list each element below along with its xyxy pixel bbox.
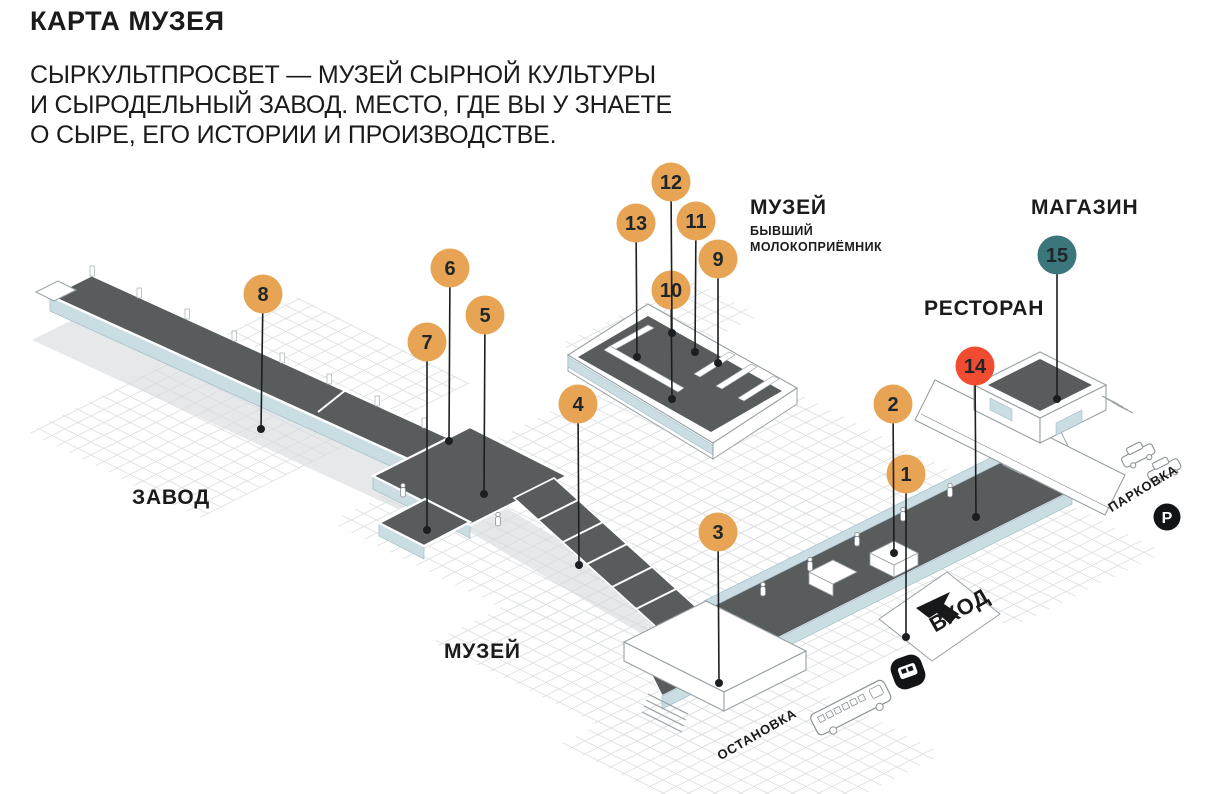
car-icon	[1118, 437, 1158, 471]
marker-endpoint-dot	[890, 549, 898, 557]
marker-leader-line	[671, 182, 672, 333]
marker-leader-line	[449, 268, 450, 441]
museum-map-page: Р	[0, 0, 1224, 794]
marker-endpoint-dot	[575, 561, 583, 569]
marker-number: 4	[572, 394, 584, 416]
marker-leader-line	[636, 223, 637, 357]
marker-endpoint-dot	[715, 679, 723, 687]
marker-endpoint-dot	[668, 395, 676, 403]
marker-endpoint-dot	[633, 353, 641, 361]
bus-icon	[887, 651, 928, 692]
marker-leader-line	[695, 221, 696, 352]
marker-endpoint-dot	[480, 490, 488, 498]
marker-number: 9	[712, 249, 723, 271]
marker-endpoint-dot	[445, 437, 453, 445]
marker-number: 5	[479, 305, 490, 327]
parking-icon-letter: Р	[1162, 510, 1173, 527]
marker-endpoint-dot	[423, 526, 431, 534]
marker-leader-line	[578, 404, 579, 565]
isometric-map-illustration: Р	[0, 0, 1224, 794]
marker-number: 7	[421, 332, 432, 354]
marker-number: 12	[660, 172, 682, 194]
shop-stairs	[1102, 396, 1133, 413]
marker-number: 1	[900, 464, 911, 486]
marker-leader-line	[893, 404, 894, 553]
marker-endpoint-dot	[714, 359, 722, 367]
marker-endpoint-dot	[257, 425, 265, 433]
marker-number: 6	[444, 258, 455, 280]
marker-number: 8	[257, 284, 268, 306]
marker-number: 2	[887, 394, 898, 416]
marker-endpoint-dot	[1053, 395, 1061, 403]
marker-number: 3	[712, 522, 723, 544]
marker-endpoint-dot	[902, 633, 910, 641]
marker-leader-line	[484, 315, 485, 494]
marker-leader-line	[718, 532, 719, 683]
marker-number: 11	[685, 211, 706, 233]
marker-endpoint-dot	[972, 513, 980, 521]
marker-endpoint-dot	[691, 348, 699, 356]
marker-number: 14	[964, 356, 987, 378]
marker-number: 15	[1046, 245, 1068, 267]
parking-area: Р	[1118, 437, 1184, 530]
marker-endpoint-dot	[668, 329, 676, 337]
marker-leader-line	[975, 366, 976, 517]
marker-number: 13	[625, 213, 647, 235]
